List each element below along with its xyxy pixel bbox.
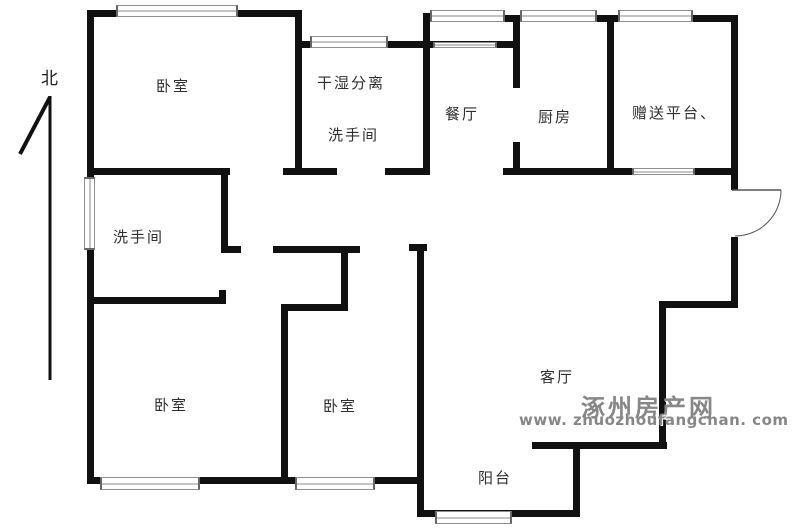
wall-living-south [532,442,667,449]
floor-plan-canvas: 北 卧室 干湿分离 洗手间 餐厅 厨房 赠送平台、 洗手间 卧室 卧室 客厅 阳… [0,0,800,529]
room-label-bedroom-left: 卧室 [154,398,188,413]
wall-dining-kitchen-upper [513,15,520,88]
watermark-site-url: www. zhuozhoufangchan. com [519,411,789,429]
wall-east-outer-upper [731,15,738,190]
room-label-dining: 餐厅 [445,107,479,122]
wall-bathroom-stub [219,290,226,304]
wall-west-outer-lower [87,250,94,484]
window-bedroom-top [116,5,238,17]
window-dry-wet [310,36,388,48]
room-label-bonus-platform: 赠送平台、 [632,106,717,121]
window-dining-top [430,10,505,22]
room-label-balcony: 阳台 [478,471,512,486]
wall-niche-south [281,304,348,311]
entry-door-swing [729,184,787,244]
window-platform-south [632,168,695,175]
room-label-washroom-upper: 洗手间 [328,128,379,143]
room-label-washroom-lower: 洗手间 [113,230,164,245]
window-balcony-south [435,511,512,524]
window-dining-inner [433,42,497,48]
wall-niche-east [341,246,348,311]
window-platform-top [618,10,693,22]
compass-north-label: 北 [41,64,58,89]
wall-bathroom-south [87,297,226,304]
wall-east-step [662,301,738,308]
room-label-bedroom-middle: 卧室 [323,399,357,414]
wall-bedroom-top-south [87,168,230,175]
wall-west-outer-upper [87,10,94,177]
north-arrow-icon [8,88,63,388]
wall-bedroom-divider [281,304,288,484]
wall-balcony-east [573,442,580,517]
wall-east-outer-mid [731,237,738,308]
wall-corridor-stub-left [283,168,337,175]
room-label-living: 客厅 [540,370,574,385]
room-label-dry-wet-separation: 干湿分离 [317,76,385,91]
room-label-kitchen: 厨房 [538,110,572,125]
wall-dining-kitchen-lower [513,142,520,175]
wall-kitchen-platform [607,15,614,175]
window-bedroom-middle-south [295,477,375,490]
window-kitchen-top [520,10,597,22]
wall-washroom-east [423,13,430,175]
wall-bathroom-east [221,172,228,253]
wall-bedroom3-east [417,244,424,517]
window-west-wall [84,177,95,250]
window-bedroom-left-south [100,477,200,490]
wall-bedroom-top-east [295,10,302,175]
room-label-bedroom-top: 卧室 [156,79,190,94]
